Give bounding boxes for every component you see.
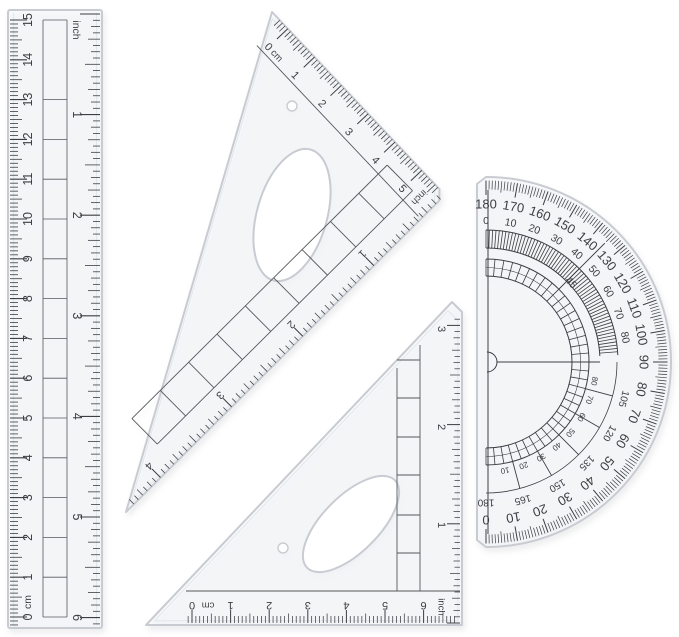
inch-number: 1 (435, 522, 447, 528)
outer-degree-number: 90 (637, 355, 652, 369)
inch-number: 2 (70, 212, 84, 219)
outer-degree-number: 180 (475, 197, 497, 212)
cm-unit-label: cm (22, 595, 34, 609)
cm-number: 2 (266, 599, 272, 611)
cm-number: 6 (21, 375, 35, 382)
cm-number: 3 (305, 599, 311, 611)
cm-number: 7 (21, 335, 35, 342)
cm-number: 11 (21, 173, 35, 186)
cm-unit-label: cm (202, 600, 215, 611)
pin-hole (278, 543, 288, 553)
inch-number: 3 (70, 312, 84, 319)
cm-number: 5 (382, 599, 388, 611)
outer-degree-number: 0 (482, 513, 489, 528)
cm-number: 13 (21, 93, 35, 107)
cm-number: 0 (21, 613, 35, 620)
inch-unit-label: inch (70, 20, 82, 39)
inch-number: 2 (435, 424, 447, 430)
inner-degree-number: 80 (618, 331, 632, 345)
cm-number: 1 (228, 599, 234, 611)
cm-number: 12 (21, 132, 35, 146)
cm-number: 0 (189, 599, 195, 611)
cm-number: 1 (21, 574, 35, 581)
cm-number: 9 (21, 255, 35, 262)
cm-number: 5 (21, 414, 35, 421)
cm-number: 14 (21, 53, 35, 67)
outer-degree-number: 80 (633, 381, 650, 398)
inner-degree-number: 180 (477, 497, 494, 508)
inch-number: 6 (70, 614, 84, 621)
pin-hole (287, 101, 297, 111)
ruler: 0123456789101112131415cm123456inch (8, 10, 102, 628)
inch-number: 3 (435, 326, 447, 332)
outer-degree-number: 10 (505, 509, 522, 526)
cm-number: 15 (21, 13, 35, 27)
scene: 0123456789101112131415cm123456inch 01234… (0, 0, 679, 637)
inch-number: 1 (70, 111, 84, 118)
inch-number: 5 (70, 514, 84, 521)
geometry-set-photo: 0123456789101112131415cm123456inch 01234… (0, 0, 679, 637)
cm-number: 4 (21, 454, 35, 461)
protractor: 4518017016015014013012011010090807060504… (475, 177, 671, 547)
cm-number: 2 (21, 534, 35, 541)
cm-number: 6 (421, 599, 427, 611)
inch-unit-label: inch (436, 598, 447, 615)
inner-degree-number: 10 (504, 216, 518, 230)
cm-number: 8 (21, 295, 35, 302)
cm-number: 4 (343, 599, 349, 611)
cm-number: 10 (21, 212, 35, 226)
inch-number: 4 (70, 413, 84, 420)
inner-degree-number: 0 (483, 215, 489, 227)
cm-number: 3 (21, 494, 35, 501)
